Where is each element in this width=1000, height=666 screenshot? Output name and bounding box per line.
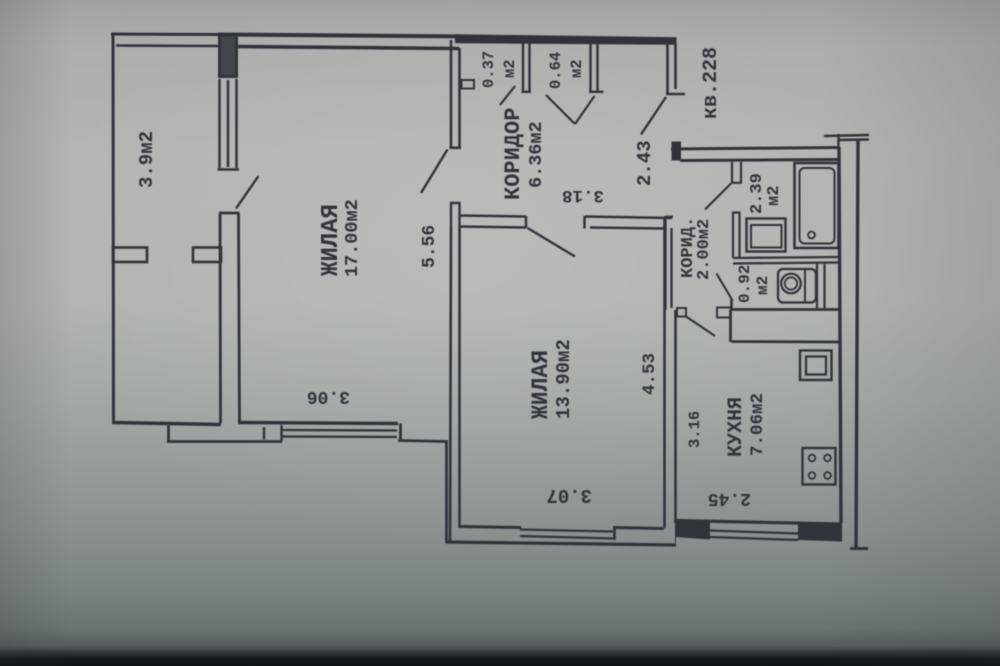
- svg-text:КОРИДОР: КОРИДОР: [501, 108, 526, 200]
- svg-text:ЖИЛАЯ: ЖИЛАЯ: [528, 350, 554, 419]
- svg-text:13.90м2: 13.90м2: [553, 339, 575, 419]
- svg-text:КУХНЯ: КУХНЯ: [725, 397, 748, 457]
- svg-text:2.45: 2.45: [708, 488, 751, 508]
- svg-text:ЖИЛАЯ: ЖИЛАЯ: [318, 204, 345, 276]
- svg-text:0.64: 0.64: [547, 52, 565, 89]
- svg-text:2.43: 2.43: [634, 140, 656, 186]
- svg-text:кв.228: кв.228: [700, 47, 723, 119]
- svg-text:7.06м2: 7.06м2: [748, 393, 768, 456]
- svg-text:17.00м2: 17.00м2: [342, 199, 363, 277]
- svg-text:3.18: 3.18: [562, 185, 604, 205]
- svg-text:м2: м2: [754, 276, 772, 295]
- svg-text:5.56: 5.56: [420, 225, 440, 268]
- svg-text:м2: м2: [501, 59, 519, 78]
- svg-text:м2: м2: [568, 59, 586, 78]
- svg-text:0.37: 0.37: [480, 51, 498, 88]
- svg-text:м2: м2: [765, 186, 784, 206]
- svg-text:3.07: 3.07: [546, 484, 592, 506]
- svg-text:4.53: 4.53: [640, 353, 660, 395]
- svg-text:6.36м2: 6.36м2: [526, 121, 547, 188]
- svg-text:2.00м2: 2.00м2: [695, 219, 714, 280]
- svg-text:3.16: 3.16: [686, 411, 704, 448]
- svg-text:0.92: 0.92: [736, 265, 754, 303]
- svg-text:3.06: 3.06: [307, 386, 350, 406]
- svg-text:3.9м2: 3.9м2: [136, 131, 158, 188]
